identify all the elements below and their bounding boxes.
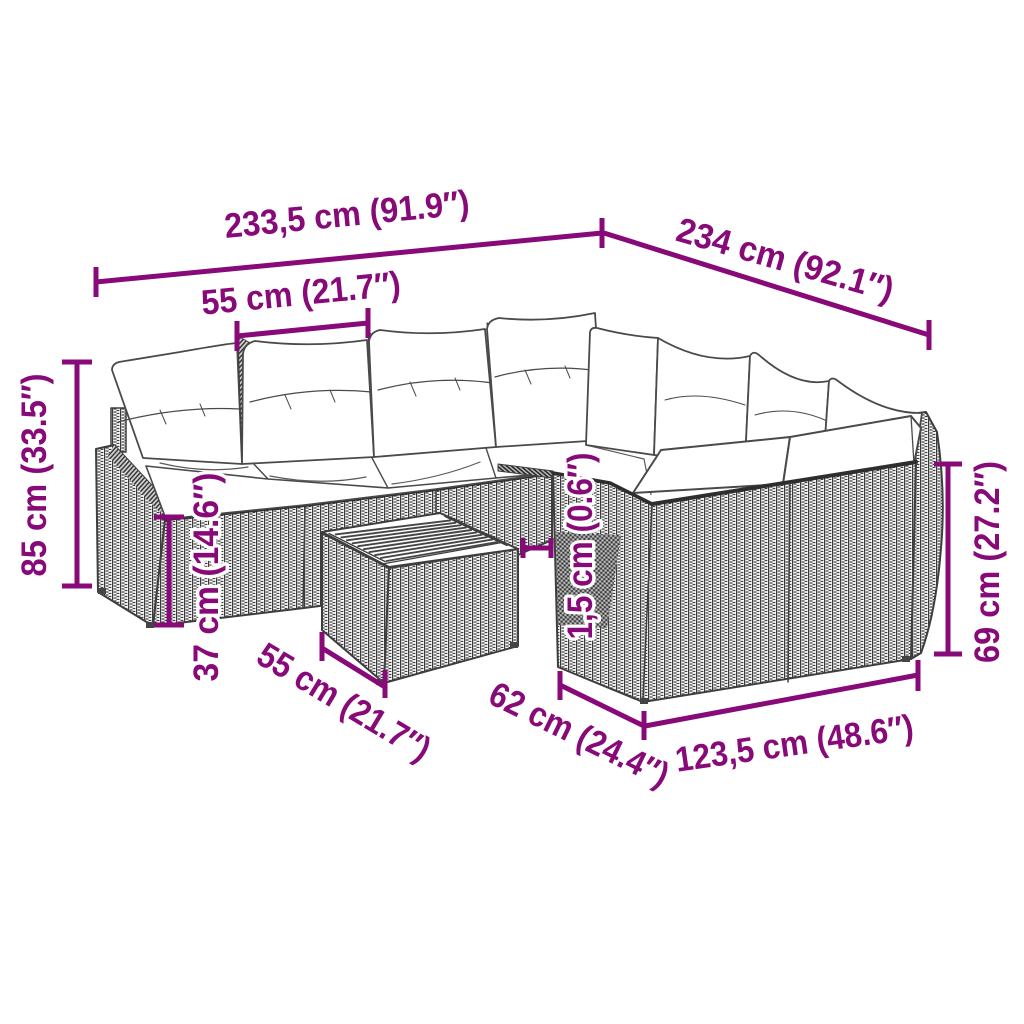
svg-text:1,5 cm (0.6″): 1,5 cm (0.6″) — [561, 453, 600, 640]
svg-text:55 cm (21.7″): 55 cm (21.7″) — [199, 264, 402, 322]
svg-text:37 cm (14.6″): 37 cm (14.6″) — [187, 473, 226, 682]
svg-text:234 cm (92.1″): 234 cm (92.1″) — [672, 210, 898, 309]
svg-text:123,5 cm (48.6″): 123,5 cm (48.6″) — [673, 708, 916, 780]
svg-text:233,5 cm (91.9″): 233,5 cm (91.9″) — [223, 183, 472, 246]
svg-text:69 cm (27.2″): 69 cm (27.2″) — [968, 461, 1007, 663]
svg-text:85 cm (33.5″): 85 cm (33.5″) — [15, 374, 54, 577]
